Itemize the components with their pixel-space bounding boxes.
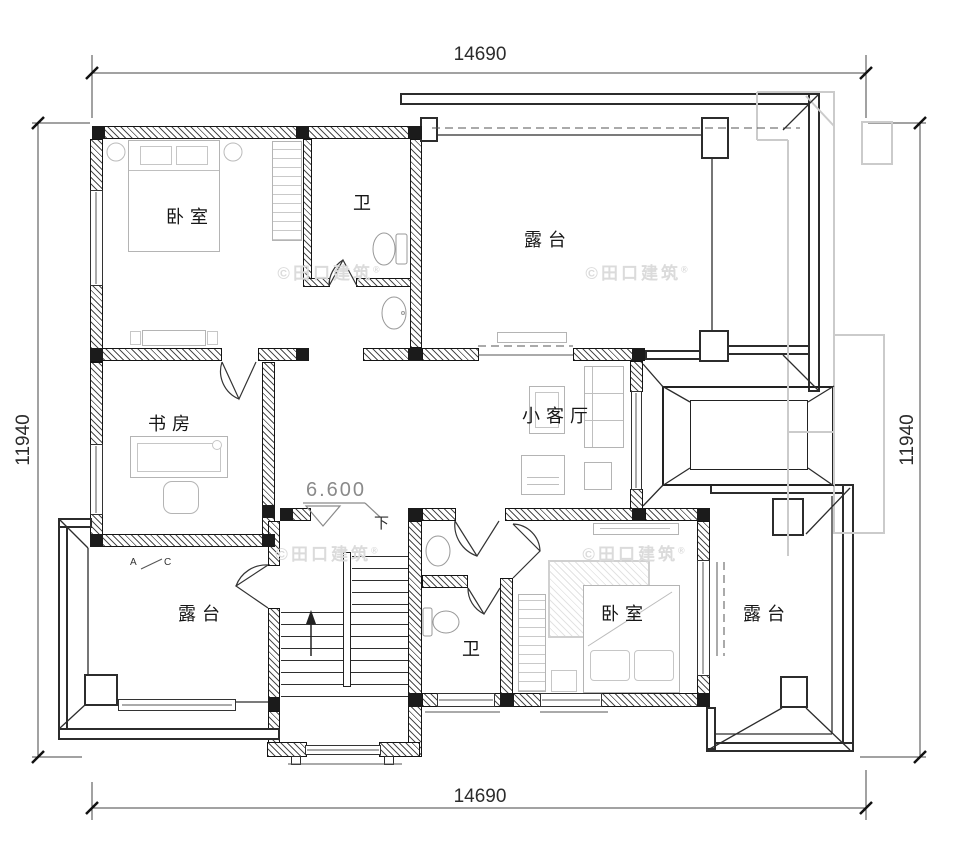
column-marker	[697, 693, 710, 707]
pillow	[634, 650, 674, 681]
watermark-text: ©田口建筑	[277, 264, 373, 283]
watermark: ©田口建筑®	[277, 259, 382, 284]
wall-segment	[268, 608, 280, 698]
wall-segment	[90, 348, 222, 361]
elevation-value: 6.600	[306, 479, 366, 502]
wardrobe	[518, 594, 546, 692]
column-marker	[262, 505, 275, 518]
wall-segment	[410, 139, 422, 348]
wall-segment	[505, 508, 633, 521]
section-marker-a: A	[130, 557, 137, 568]
room-label-terrace-bottom-right: 露台	[743, 600, 791, 626]
pillow	[140, 146, 172, 165]
sofa-cushion-line	[585, 393, 623, 394]
wall-segment	[90, 534, 276, 547]
wall-segment	[267, 742, 307, 757]
bed-line	[129, 170, 219, 171]
wall-segment	[573, 348, 633, 361]
window	[697, 560, 710, 676]
column-marker	[296, 126, 309, 139]
office-chair	[163, 481, 199, 514]
desk-top	[137, 443, 221, 472]
wall-segment	[90, 139, 103, 192]
column-marker	[408, 693, 422, 707]
watermark-registered: ®	[678, 545, 688, 555]
dresser-side	[207, 331, 218, 345]
parapet-wall	[706, 707, 716, 750]
wall-segment	[697, 521, 710, 563]
room-label-bath-bottom: 卫	[462, 635, 480, 661]
window	[90, 444, 103, 515]
room-label-terrace-bottom-left: 露台	[178, 600, 226, 626]
window	[90, 190, 103, 286]
stair-railing	[343, 552, 351, 687]
column-marker	[408, 508, 422, 521]
tv-cabinet	[593, 523, 679, 535]
column-marker	[262, 534, 275, 547]
dimension-bottom: 14690	[454, 786, 507, 808]
parapet-pillar	[780, 676, 808, 708]
dimension-right: 11940	[897, 414, 919, 465]
bench	[497, 332, 567, 343]
wardrobe	[272, 141, 302, 241]
parapet-pillar	[699, 330, 729, 362]
elevation-marker	[303, 503, 380, 526]
column-marker	[296, 348, 309, 361]
watermark-text: ©田口建筑	[582, 545, 678, 564]
side-table	[584, 462, 612, 490]
room-label-bedroom-top-left: 卧室	[166, 203, 214, 229]
window	[540, 693, 602, 707]
parapet-pillar	[84, 674, 118, 706]
wall-segment	[408, 521, 422, 694]
floor-plan-canvas: 卧室 卫 露台 书房 小客厅 露台 卫 卧室 露台 14690 14690 11…	[0, 0, 960, 860]
watermark: ©田口建筑®	[585, 259, 690, 284]
desk-lamp	[212, 440, 222, 450]
watermark-registered: ®	[371, 545, 381, 555]
dresser	[142, 330, 206, 346]
parapet-wall	[706, 742, 854, 752]
wall-segment	[90, 362, 103, 446]
parapet-pillar	[701, 117, 729, 159]
coffee-table-line	[527, 477, 559, 478]
parapet-pillar	[772, 498, 804, 536]
wall-segment	[92, 126, 424, 139]
column-marker	[500, 693, 514, 707]
room-label-living-small: 小客厅	[522, 402, 594, 428]
column-marker	[408, 348, 422, 361]
section-marker-c: C	[164, 557, 171, 568]
wall-segment	[422, 575, 468, 588]
column-marker	[632, 508, 645, 521]
window	[437, 693, 495, 707]
watermark-registered: ®	[373, 264, 383, 274]
wall-segment	[500, 578, 513, 694]
window	[305, 745, 381, 755]
parapet-wall	[400, 93, 820, 105]
watermark-registered: ®	[681, 264, 691, 274]
column-marker	[90, 534, 103, 547]
parapet-wall	[842, 484, 854, 752]
watermark-text: ©田口建筑	[585, 264, 681, 283]
parapet-wall	[645, 350, 703, 360]
room-label-study: 书房	[148, 410, 196, 436]
column-marker	[280, 508, 293, 521]
column-marker	[268, 697, 280, 711]
watermark: ©田口建筑®	[582, 540, 687, 565]
nightstand	[551, 670, 577, 692]
parapet-wall	[58, 518, 92, 528]
pillow	[176, 146, 208, 165]
wall-segment	[505, 693, 710, 707]
wall-segment	[363, 348, 409, 361]
window	[118, 699, 236, 711]
wall-segment	[697, 674, 710, 694]
wall-segment	[422, 348, 479, 361]
parapet-wall	[58, 728, 280, 740]
dimension-top: 14690	[454, 44, 507, 66]
wall-segment	[379, 742, 420, 757]
section-marker-line	[141, 559, 162, 569]
wall-segment	[258, 348, 300, 361]
watermark: ©田口建筑®	[275, 540, 380, 565]
dimension-left: 11940	[13, 414, 35, 465]
bay-window-roof-ridge	[690, 400, 808, 470]
watermark-text: ©田口建筑	[275, 545, 371, 564]
tv-cabinet-line	[600, 528, 670, 529]
pillow	[590, 650, 630, 681]
parapet-wall	[58, 518, 68, 740]
room-label-bedroom-bottom-right: 卧室	[601, 600, 649, 626]
stair-direction-label: 下	[374, 512, 389, 533]
column-marker	[697, 508, 710, 521]
parapet-wall	[727, 345, 810, 355]
room-label-terrace-top: 露台	[524, 226, 572, 252]
entry-step	[291, 756, 301, 765]
dresser-side	[130, 331, 141, 345]
coffee-table	[521, 455, 565, 495]
column-marker	[92, 126, 105, 139]
wall-segment	[630, 489, 643, 509]
entry-step	[384, 756, 394, 765]
room-label-bath-top: 卫	[353, 189, 371, 215]
parapet-pillar	[420, 117, 438, 142]
window	[631, 391, 642, 490]
column-marker	[90, 348, 103, 361]
column-marker	[632, 348, 645, 361]
coffee-table-line	[527, 484, 559, 485]
wall-segment	[630, 361, 643, 392]
column-marker	[408, 126, 422, 139]
wall-segment	[422, 508, 456, 521]
